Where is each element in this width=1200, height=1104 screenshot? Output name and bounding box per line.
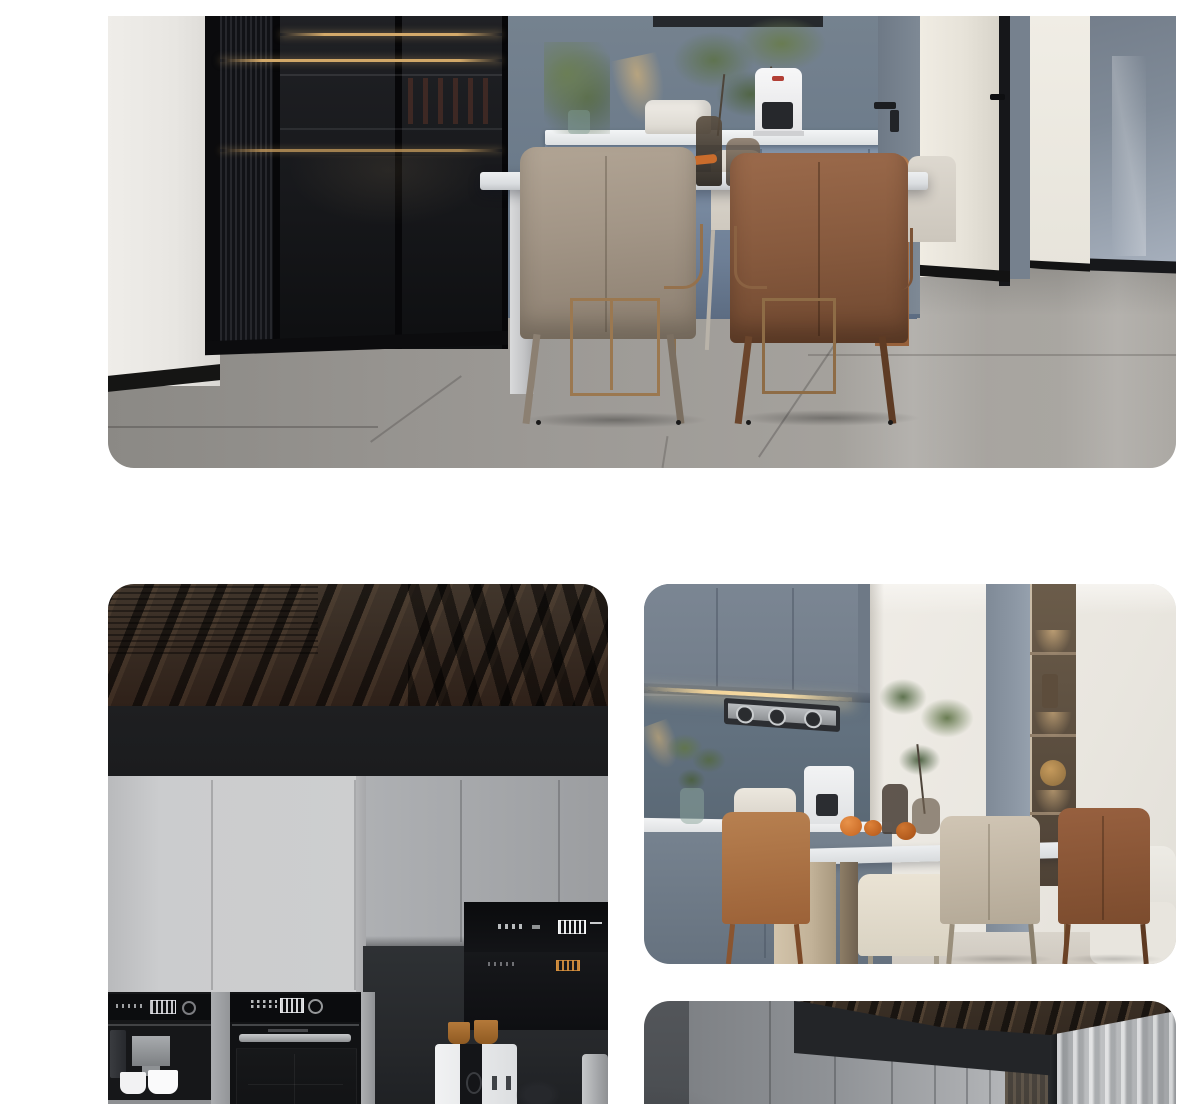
coffee-machine-dial [182,1001,196,1015]
tile-grout-line [108,426,378,428]
wall-reflection [1112,56,1146,256]
steel-kettle [582,1054,608,1104]
niche-spotlight [1034,712,1072,738]
chair-seam [1102,816,1104,920]
coffee-maker-spout [506,1076,511,1090]
coffee-maker-window [816,794,838,816]
oven-dial [308,999,323,1014]
oven-trim [232,1024,359,1026]
door-handle [990,94,1005,100]
power-socket [768,707,786,726]
oven-buttons [251,1000,277,1003]
door-lock [890,110,899,132]
chair-foot [536,420,541,425]
cabinet-seam [211,780,213,990]
chair-shadow [1064,954,1164,964]
table-wood-leg [840,862,858,964]
hood-display [558,920,586,934]
cabinet-seam [792,588,794,692]
coffee-maker-badge [466,1072,482,1094]
door-lock [874,102,896,109]
range-hood-lower [464,952,608,1030]
blue-gray-panel [1010,16,1030,279]
cabinet-side-panel [858,584,870,702]
niche-spotlight [1034,630,1072,656]
led-strip [220,59,502,62]
oven-handle [239,1034,351,1042]
oven-display [280,998,304,1013]
tile-grout-line [808,354,1176,356]
chair-foot [746,420,751,425]
coffee-machine-base [753,131,804,136]
chair-armrest [734,226,767,289]
reeded-glass-panel [220,16,273,346]
glass-door-frame [205,16,220,349]
upper-cabinets [644,584,870,696]
coffee-maker-spout [492,1076,497,1090]
photo-wardrobe-hallway[interactable] [644,1001,1176,1104]
power-socket [804,710,822,729]
chair-armrest [900,228,913,290]
door-frame [999,16,1010,286]
coffee-machine-display [150,1000,176,1014]
chair-foot [888,420,893,425]
glass-vase [680,788,704,824]
brown-leather-chair [1058,808,1150,924]
photo-dining-room-wide[interactable] [108,16,1176,468]
oven-rack-line [294,1054,295,1104]
chair-bronze-frame [570,298,660,396]
white-chair-right [908,156,956,242]
green-plant-large [870,662,980,802]
chair-foot [676,420,681,425]
coffee-machine-logo [772,76,784,81]
coffee-machine-buttons [116,1004,146,1008]
chair-bronze-frame [610,298,613,390]
photo-dining-area[interactable] [644,584,1176,964]
oven-door-glass [236,1048,357,1104]
black-soffit [108,706,608,776]
cabinet-seam [716,588,718,692]
oven-buttons [251,1005,277,1008]
orange-fruit [840,816,862,836]
decor-globe [1040,760,1066,786]
oven-frame [211,992,230,1104]
cream-wall [1030,16,1090,269]
hood-control-dot [532,925,540,929]
cabinet-seam [460,780,462,942]
led-strip [220,149,502,152]
coffee-grinder [110,1030,126,1078]
photo-kitchen-appliance-wall[interactable] [108,584,608,1104]
dark-glass-vase [912,798,940,834]
cognac-leather-chair [722,812,810,924]
power-socket [736,705,754,724]
chair-armrest [664,224,703,289]
niche-shelf [108,1100,211,1104]
chair-shadow [944,954,1054,964]
hood-control-dots [498,924,524,929]
hood-display-amber [556,960,580,971]
dark-cookware [516,1080,560,1104]
wine-bottles [408,78,498,124]
taupe-leather-chair [940,816,1040,924]
oven-label [268,1029,308,1032]
glass-vase [568,110,590,134]
hood-control-dots [488,962,518,966]
timber-slat-texture [408,584,608,706]
white-cup [120,1072,146,1094]
product-gallery-page [0,0,1200,1104]
brown-cup [448,1022,470,1044]
brown-cup [474,1020,498,1044]
orange-fruit [896,822,916,840]
cabinet-panel [361,992,375,1104]
white-wall [108,16,220,386]
chair-leg [934,956,939,964]
floor-reflection [1058,266,1176,468]
coffee-machine-window [762,102,793,129]
corner-vignette [644,1081,844,1104]
timber-slat-texture [108,584,318,654]
decor-figurine [1042,674,1058,708]
cream-leather-chair [858,874,950,956]
white-cup [148,1070,178,1094]
chair-bronze-frame [762,298,836,394]
orange-fruit [864,820,882,836]
coffee-group-head [132,1036,170,1066]
glass-mullion [273,16,280,349]
cabinet-shelf-line [280,74,502,76]
glass-inner-glow [288,156,488,226]
coffee-machine-trim [108,1024,211,1026]
hood-control-line [590,922,602,924]
oven-rack-line [248,1084,343,1085]
led-strip [280,33,502,36]
cabinet-shelf-line [280,128,502,130]
dark-glass-vase [696,116,722,186]
chair-seam [988,824,990,920]
chair-leg [868,956,873,964]
light-gray-cabinets [108,776,366,993]
